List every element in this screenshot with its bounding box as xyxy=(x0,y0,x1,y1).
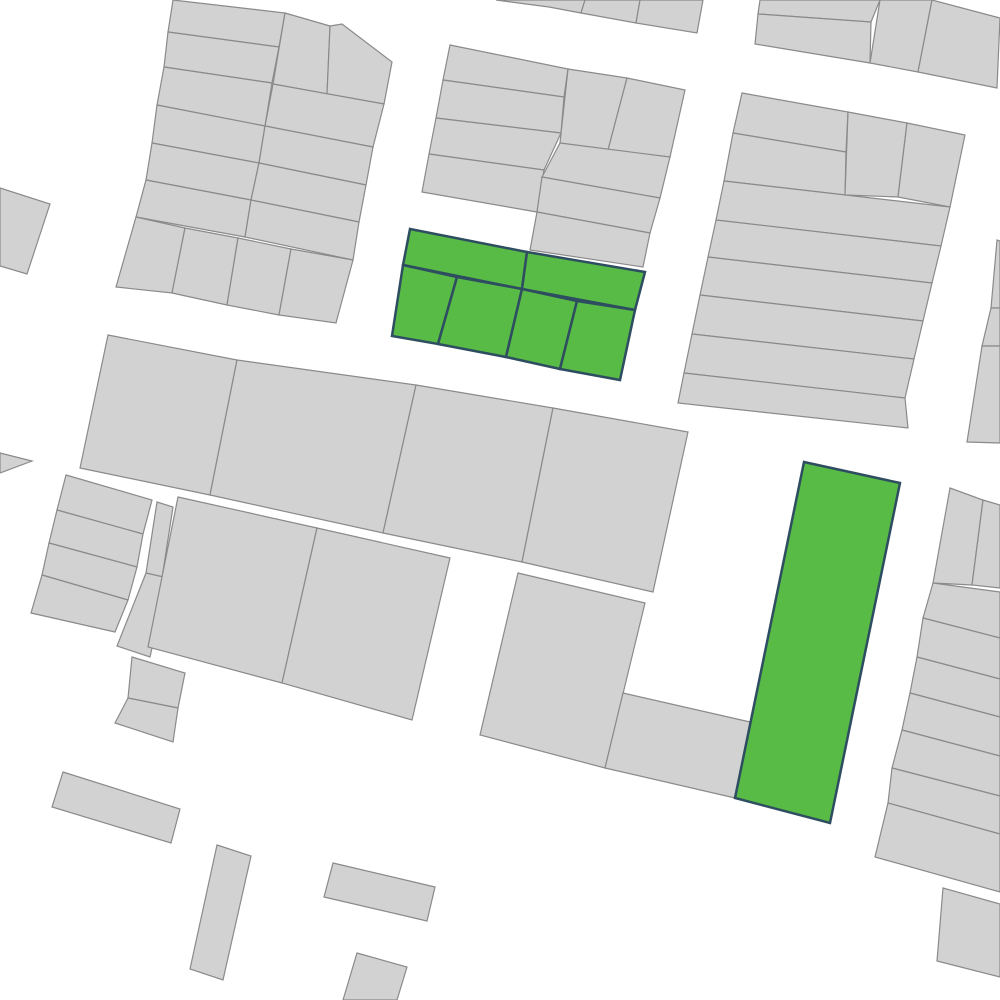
map-canvas[interactable] xyxy=(0,0,1000,1000)
parcel-nw-lot-d[interactable] xyxy=(279,249,353,323)
parcel-nw-tall-2[interactable] xyxy=(327,24,392,104)
parcel-north-strip-2[interactable] xyxy=(581,0,640,23)
parcel-north-strip-1[interactable] xyxy=(496,0,585,13)
parcel-eastedge-s3[interactable] xyxy=(967,346,1000,443)
parcel-north-strip-3[interactable] xyxy=(636,0,703,33)
parcel-south-rect-3[interactable] xyxy=(343,953,407,1000)
parcel-mid-parcel-1[interactable] xyxy=(80,335,237,495)
parcel-south-rect-vertical[interactable] xyxy=(190,845,251,980)
parcel-eastedge-s1[interactable] xyxy=(991,240,1000,308)
parcel-ne-top-a2[interactable] xyxy=(755,14,871,63)
parcel-se-corner[interactable] xyxy=(937,888,1000,977)
parcel-mid-parcel-2[interactable] xyxy=(210,360,416,533)
parcel-sw-rect[interactable] xyxy=(52,772,180,843)
highlighted-parcel-green-tall[interactable] xyxy=(735,462,900,823)
parcel-west-parcel[interactable] xyxy=(0,188,50,274)
parcel-west-edge-wedge[interactable] xyxy=(0,453,32,473)
parcel-eastedge-s2[interactable] xyxy=(982,308,1000,346)
parcel-mid-parcel-4[interactable] xyxy=(522,408,688,592)
parcel-east-tall-a[interactable] xyxy=(845,112,907,197)
parcel-southcenter-b[interactable] xyxy=(605,693,750,798)
parcel-south-rect-2[interactable] xyxy=(324,863,435,921)
map-viewport xyxy=(0,0,1000,1000)
parcel-east-tall-b[interactable] xyxy=(898,123,965,207)
parcel-ne-top-c[interactable] xyxy=(918,0,1000,88)
